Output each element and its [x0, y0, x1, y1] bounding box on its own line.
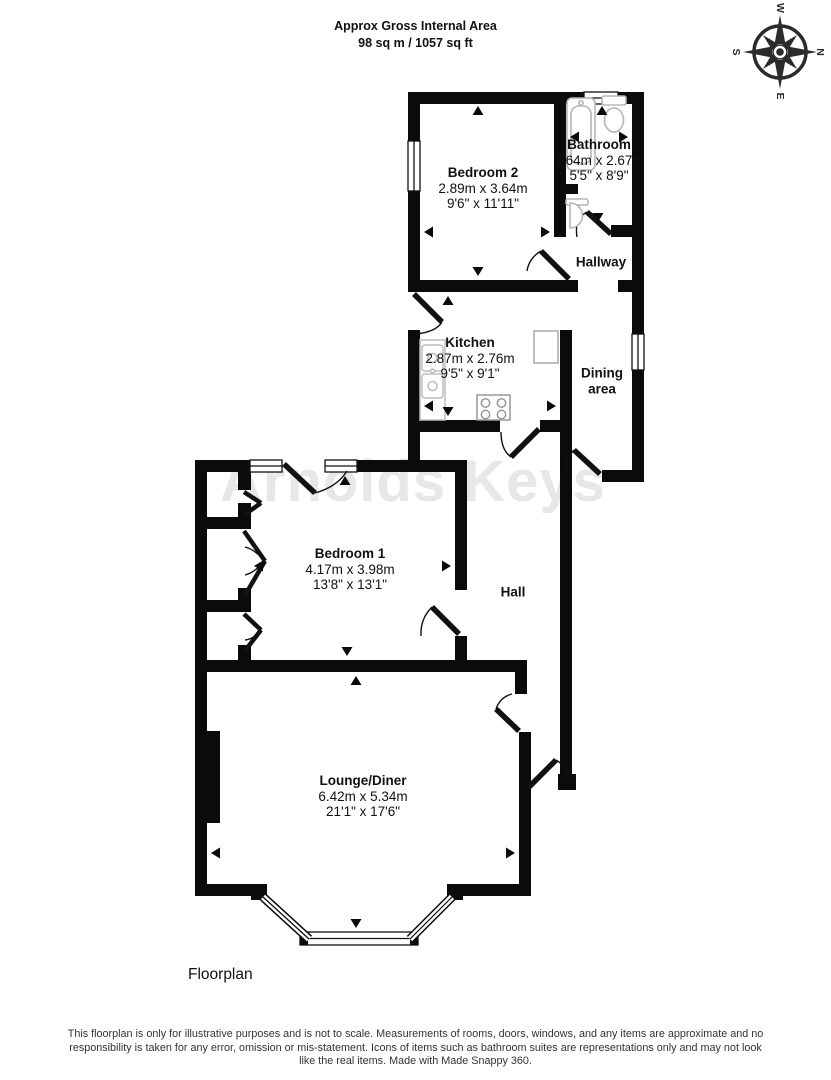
room-dim-metric: 2.89m x 3.64m [438, 180, 527, 196]
doors [244, 212, 611, 788]
room-label-bedroom-1: Bedroom 1 4.17m x 3.98m 13'8" x 13'1" [305, 546, 394, 593]
room-dim-metric: 1.64m x 2.67m [554, 152, 643, 168]
room-dim-metric: 4.17m x 3.98m [305, 561, 394, 577]
room-name: Hall [501, 584, 526, 600]
room-dim-imperial: 9'6" x 11'11" [438, 196, 527, 212]
room-name: Lounge/Diner [318, 773, 407, 789]
floorplan-drawing: N E S W [0, 0, 831, 1080]
room-label-hall: Hall [501, 584, 526, 600]
room-label-hallway: Hallway [576, 254, 626, 270]
room-dim-metric: 6.42m x 5.34m [318, 788, 407, 804]
room-name: Hallway [576, 254, 626, 270]
room-label-bedroom-2: Bedroom 2 2.89m x 3.64m 9'6" x 11'11" [438, 165, 527, 212]
room-name: Bedroom 2 [438, 165, 527, 181]
compass-e: E [774, 92, 786, 99]
room-dim-imperial: 9'5" x 9'1" [425, 366, 514, 382]
plan-header: Approx Gross Internal Area 98 sq m / 105… [0, 18, 831, 52]
room-label-dining-area: Dining area [576, 366, 628, 397]
room-dim-metric: 2.87m x 2.76m [425, 350, 514, 366]
room-dim-imperial: 13'8" x 13'1" [305, 577, 394, 593]
plan-title: Approx Gross Internal Area [0, 18, 831, 35]
room-name: Bathroom [554, 137, 643, 153]
room-label-kitchen: Kitchen 2.87m x 2.76m 9'5" x 9'1" [425, 335, 514, 382]
plan-subtitle: 98 sq m / 1057 sq ft [0, 35, 831, 52]
disclaimer-text: This floorplan is only for illustrative … [66, 1028, 766, 1069]
room-dim-imperial: 21'1" x 17'6" [318, 804, 407, 820]
floorplan-page: Approx Gross Internal Area 98 sq m / 105… [0, 0, 831, 1080]
room-dim-imperial: 5'5" x 8'9" [554, 168, 643, 184]
hob-icon [477, 395, 510, 420]
cupboard-icon [534, 331, 558, 363]
compass-w: W [774, 3, 786, 13]
windows [250, 92, 644, 945]
room-label-bathroom: Bathroom 1.64m x 2.67m 5'5" x 8'9" [554, 137, 643, 184]
room-name: Dining area [576, 366, 628, 397]
room-name: Bedroom 1 [305, 546, 394, 562]
room-label-lounge-diner: Lounge/Diner 6.42m x 5.34m 21'1" x 17'6" [318, 773, 407, 820]
room-name: Kitchen [425, 335, 514, 351]
floorplan-caption: Floorplan [188, 966, 253, 984]
